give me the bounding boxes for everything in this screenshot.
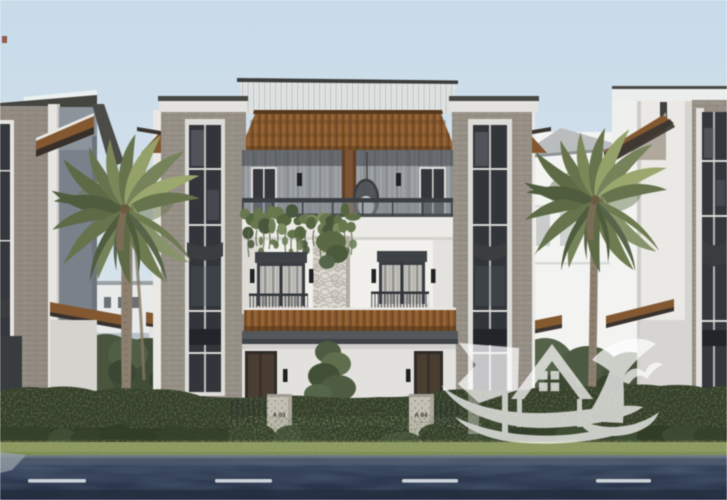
svg-text:A 03: A 03 bbox=[273, 412, 286, 419]
svg-text:A 04: A 04 bbox=[415, 412, 428, 419]
